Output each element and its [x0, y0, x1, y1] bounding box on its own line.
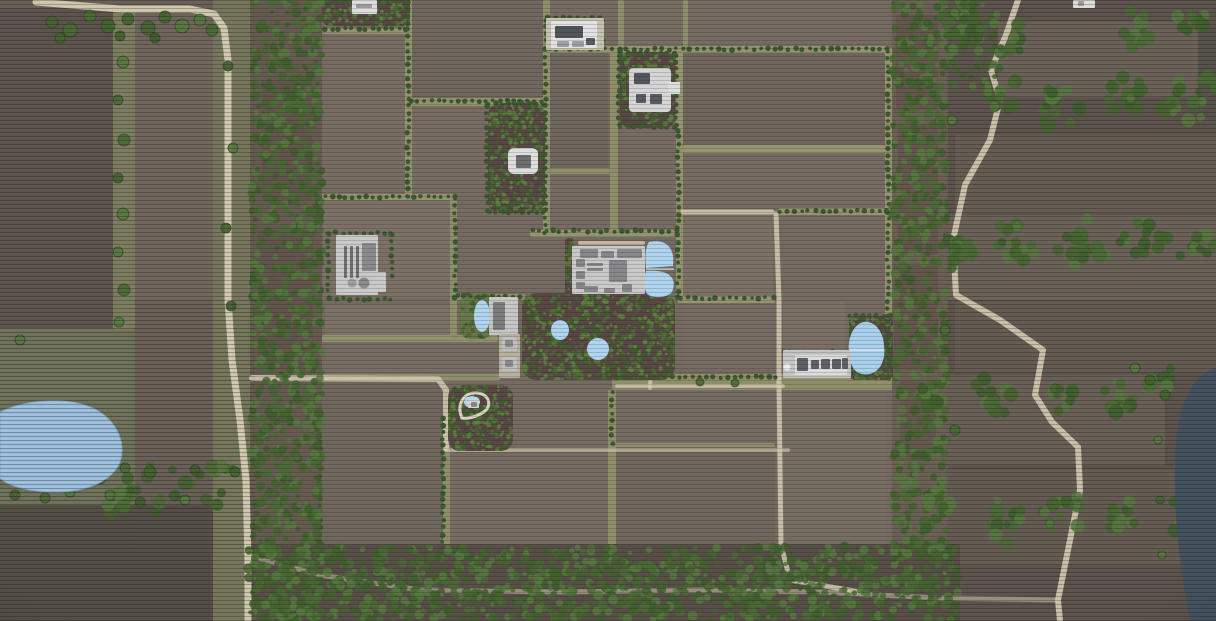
row-stripes	[133, 298, 255, 550]
building-part	[572, 41, 584, 47]
orchard-pond-1	[551, 320, 569, 340]
map-canvas	[0, 0, 1216, 621]
building-part	[821, 359, 830, 369]
building-part	[650, 94, 662, 104]
field-plot[interactable]	[783, 392, 887, 545]
building-part	[555, 26, 583, 38]
field-plot[interactable]	[548, 172, 608, 230]
building-part	[516, 155, 531, 168]
field-plot[interactable]	[323, 30, 408, 196]
building-part	[587, 263, 603, 266]
building-part	[617, 249, 642, 258]
field-plot[interactable]	[783, 302, 845, 350]
building-part	[348, 279, 357, 288]
field-plot[interactable]	[683, 152, 885, 207]
field-plot[interactable]	[410, 0, 545, 100]
grass-strip	[683, 0, 688, 48]
row-stripes	[0, 328, 135, 508]
building-part	[580, 249, 598, 258]
building-part	[811, 360, 819, 369]
orchard-pond-2	[587, 338, 609, 360]
main-farm-center	[572, 246, 645, 294]
field-plot[interactable]	[686, 0, 888, 46]
tree	[696, 378, 704, 386]
orchard-house-west	[508, 148, 538, 174]
field-plot[interactable]	[622, 0, 683, 46]
building-part	[356, 4, 372, 8]
building-part	[634, 73, 650, 84]
building-part	[493, 302, 505, 330]
building-part	[587, 268, 603, 271]
row-stripes	[946, 0, 1216, 621]
building-part	[636, 94, 646, 103]
grass-strip	[450, 196, 457, 338]
field-plot[interactable]	[322, 382, 444, 548]
field-plot[interactable]	[325, 342, 497, 374]
pond-west-farmstead	[474, 300, 490, 332]
building-part	[604, 288, 615, 293]
field-plot[interactable]	[778, 222, 885, 298]
building-part	[784, 364, 791, 371]
building-part	[576, 259, 585, 267]
field-plot[interactable]	[410, 105, 488, 197]
field-plot[interactable]	[622, 130, 675, 230]
building-part	[356, 246, 359, 278]
building-part	[359, 278, 370, 289]
farmstead-small-center	[489, 297, 518, 335]
building-part	[471, 402, 477, 407]
grass-strip	[683, 145, 885, 153]
game-map[interactable]	[0, 0, 1216, 621]
field-plot[interactable]	[683, 52, 885, 144]
field-plot[interactable]	[683, 302, 773, 368]
building-part	[350, 246, 353, 278]
building-part	[505, 360, 513, 367]
building-part	[344, 246, 347, 278]
sheds-center-south	[499, 334, 520, 378]
building-part	[362, 243, 376, 271]
building-part	[609, 260, 627, 282]
building-part	[668, 82, 680, 94]
field-plot[interactable]	[450, 455, 612, 547]
field-plot[interactable]	[548, 52, 608, 168]
field-plot[interactable]	[615, 392, 775, 443]
building-part	[557, 41, 569, 47]
building-part	[584, 286, 598, 292]
tree	[731, 379, 739, 387]
field-plot[interactable]	[325, 305, 453, 337]
field-plot[interactable]	[615, 447, 775, 545]
orchard-plot	[521, 291, 677, 382]
solar-barn-north	[546, 18, 604, 50]
building-part	[797, 358, 808, 371]
grass-strip	[618, 0, 624, 48]
building-part	[586, 38, 595, 45]
building-part	[601, 251, 614, 258]
greenhouse-farm-east	[783, 350, 851, 378]
shed-north-edge	[352, 0, 377, 14]
building-part	[622, 284, 632, 292]
building-part	[374, 272, 386, 292]
grass-strip	[548, 168, 610, 174]
field-plot[interactable]	[683, 215, 773, 298]
grass-strip	[615, 443, 775, 447]
building-part	[576, 271, 585, 279]
building-part	[842, 358, 848, 369]
building-part	[832, 359, 841, 369]
building-part	[576, 282, 585, 289]
building-part	[505, 340, 513, 347]
lake-east-farm	[849, 322, 885, 375]
